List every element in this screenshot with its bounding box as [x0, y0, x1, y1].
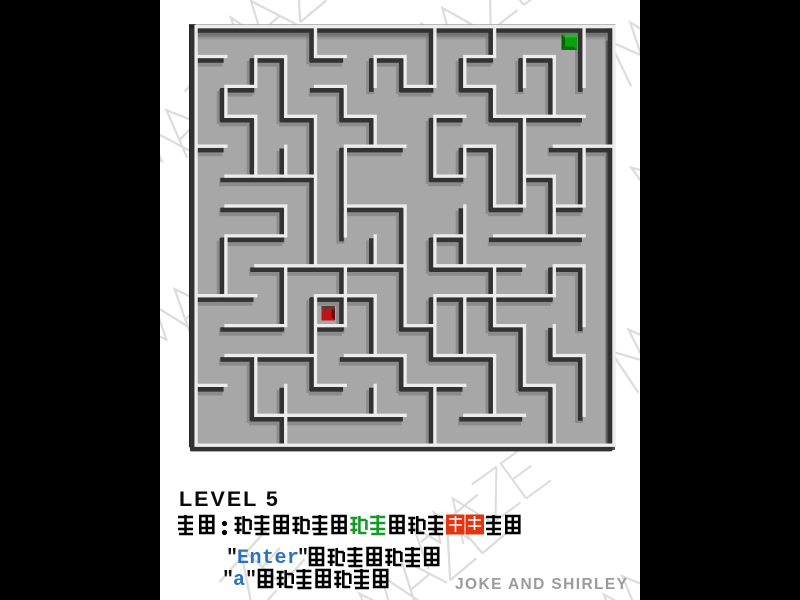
svg-text:LEVEL 5: LEVEL 5	[179, 487, 280, 511]
svg-text:a: a	[233, 569, 245, 592]
svg-text:Enter: Enter	[237, 547, 300, 570]
svg-text:JOKE AND SHIRLEY: JOKE AND SHIRLEY	[455, 576, 628, 593]
svg-text:": "	[297, 547, 309, 570]
svg-text:": "	[245, 569, 257, 592]
